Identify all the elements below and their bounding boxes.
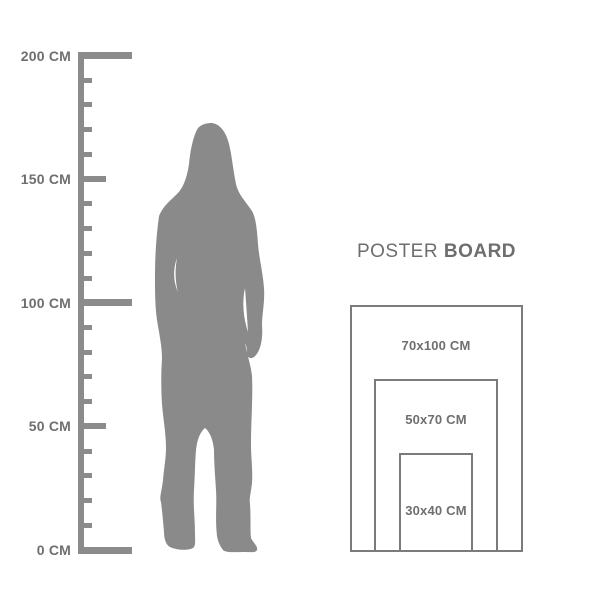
ruler-minor-tick xyxy=(78,201,92,206)
ruler-tick-label: 150 CM xyxy=(0,171,71,187)
ruler-minor-tick xyxy=(78,102,92,107)
poster-size-guide: 0 CM50 CM100 CM150 CM200 CM POSTER BOARD… xyxy=(0,0,600,600)
ruler-minor-tick xyxy=(78,78,92,83)
ruler-minor-tick xyxy=(78,473,92,478)
ruler-minor-tick xyxy=(78,152,92,157)
ruler-tick-label: 50 CM xyxy=(0,418,71,434)
poster-size-label: 70x100 CM xyxy=(350,338,523,354)
ruler-minor-tick xyxy=(78,276,92,281)
woman-silhouette xyxy=(150,118,270,556)
ruler-minor-tick xyxy=(78,325,92,330)
ruler-minor-tick xyxy=(78,350,92,355)
poster-size-label: 50x70 CM xyxy=(374,412,498,428)
ruler-mid-tick xyxy=(78,176,106,182)
ruler-major-tick xyxy=(78,299,132,306)
poster-board-title-regular: POSTER xyxy=(357,241,438,262)
ruler-major-tick xyxy=(78,52,132,59)
ruler-minor-tick xyxy=(78,449,92,454)
ruler-mid-tick xyxy=(78,423,106,429)
poster-size-label: 30x40 CM xyxy=(399,503,473,519)
woman-silhouette-path xyxy=(155,123,264,552)
ruler-minor-tick xyxy=(78,498,92,503)
ruler-tick-label: 0 CM xyxy=(0,542,71,558)
poster-board-title-bold: BOARD xyxy=(444,241,516,262)
ruler-minor-tick xyxy=(78,127,92,132)
ruler-minor-tick xyxy=(78,399,92,404)
ruler-minor-tick xyxy=(78,251,92,256)
ruler-minor-tick xyxy=(78,523,92,528)
poster-board-title: POSTER BOARD xyxy=(350,241,523,263)
ruler-tick-label: 100 CM xyxy=(0,295,71,311)
ruler-minor-tick xyxy=(78,374,92,379)
ruler-minor-tick xyxy=(78,226,92,231)
ruler-tick-label: 200 CM xyxy=(0,48,71,64)
ruler-major-tick xyxy=(78,547,132,554)
